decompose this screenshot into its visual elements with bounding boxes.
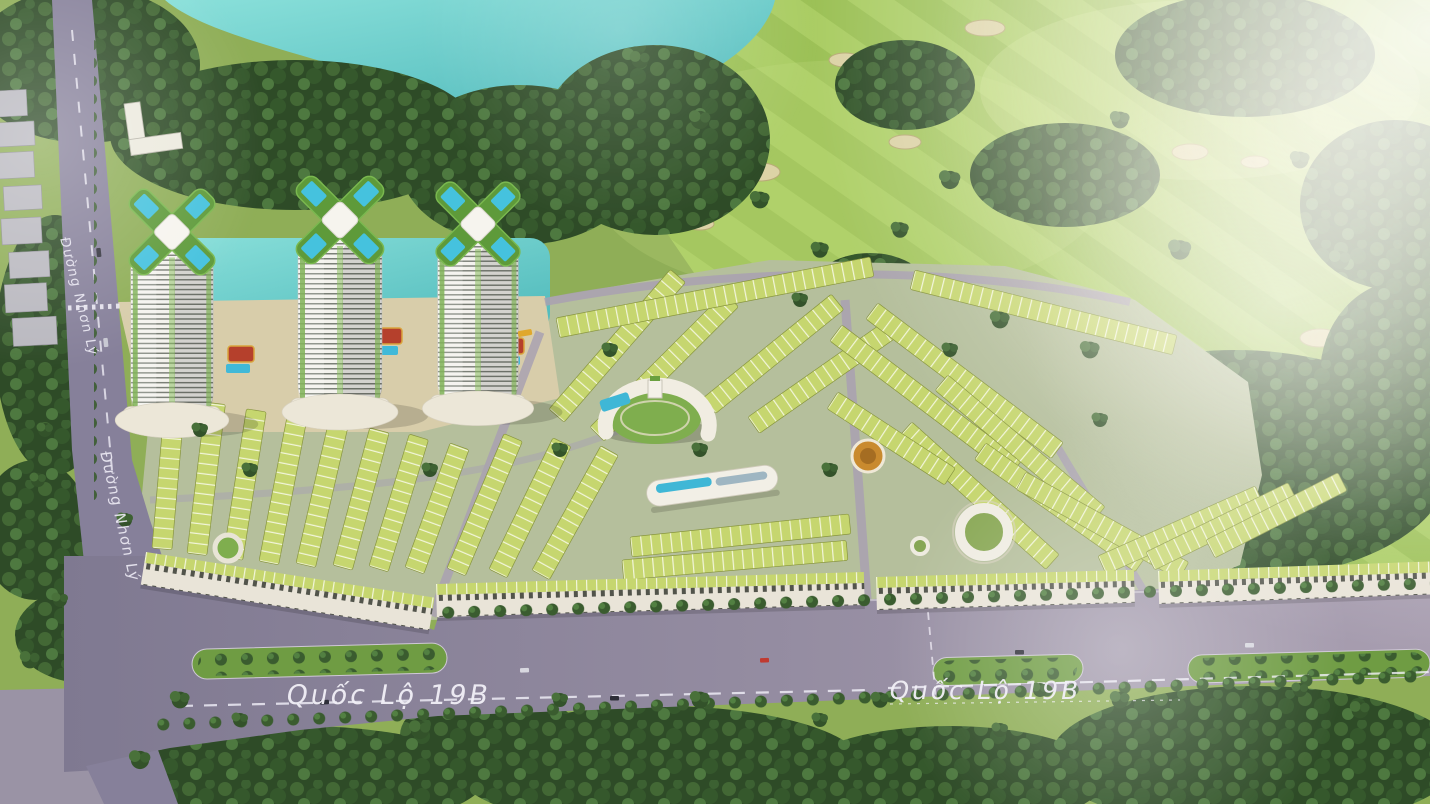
aerial-render: Quốc Lộ 19B Quốc Lộ 19B Đường Nhơn Lý Đư… (0, 0, 1430, 804)
render-canvas: Quốc Lộ 19B Quốc Lộ 19B Đường Nhơn Lý Đư… (0, 0, 1430, 804)
round-pavilion (852, 440, 884, 472)
highway-label-left: Quốc Lộ 19B (284, 680, 494, 711)
highway-label-right: Quốc Lộ 19B (887, 676, 1084, 705)
round-plaza-left (215, 535, 241, 561)
